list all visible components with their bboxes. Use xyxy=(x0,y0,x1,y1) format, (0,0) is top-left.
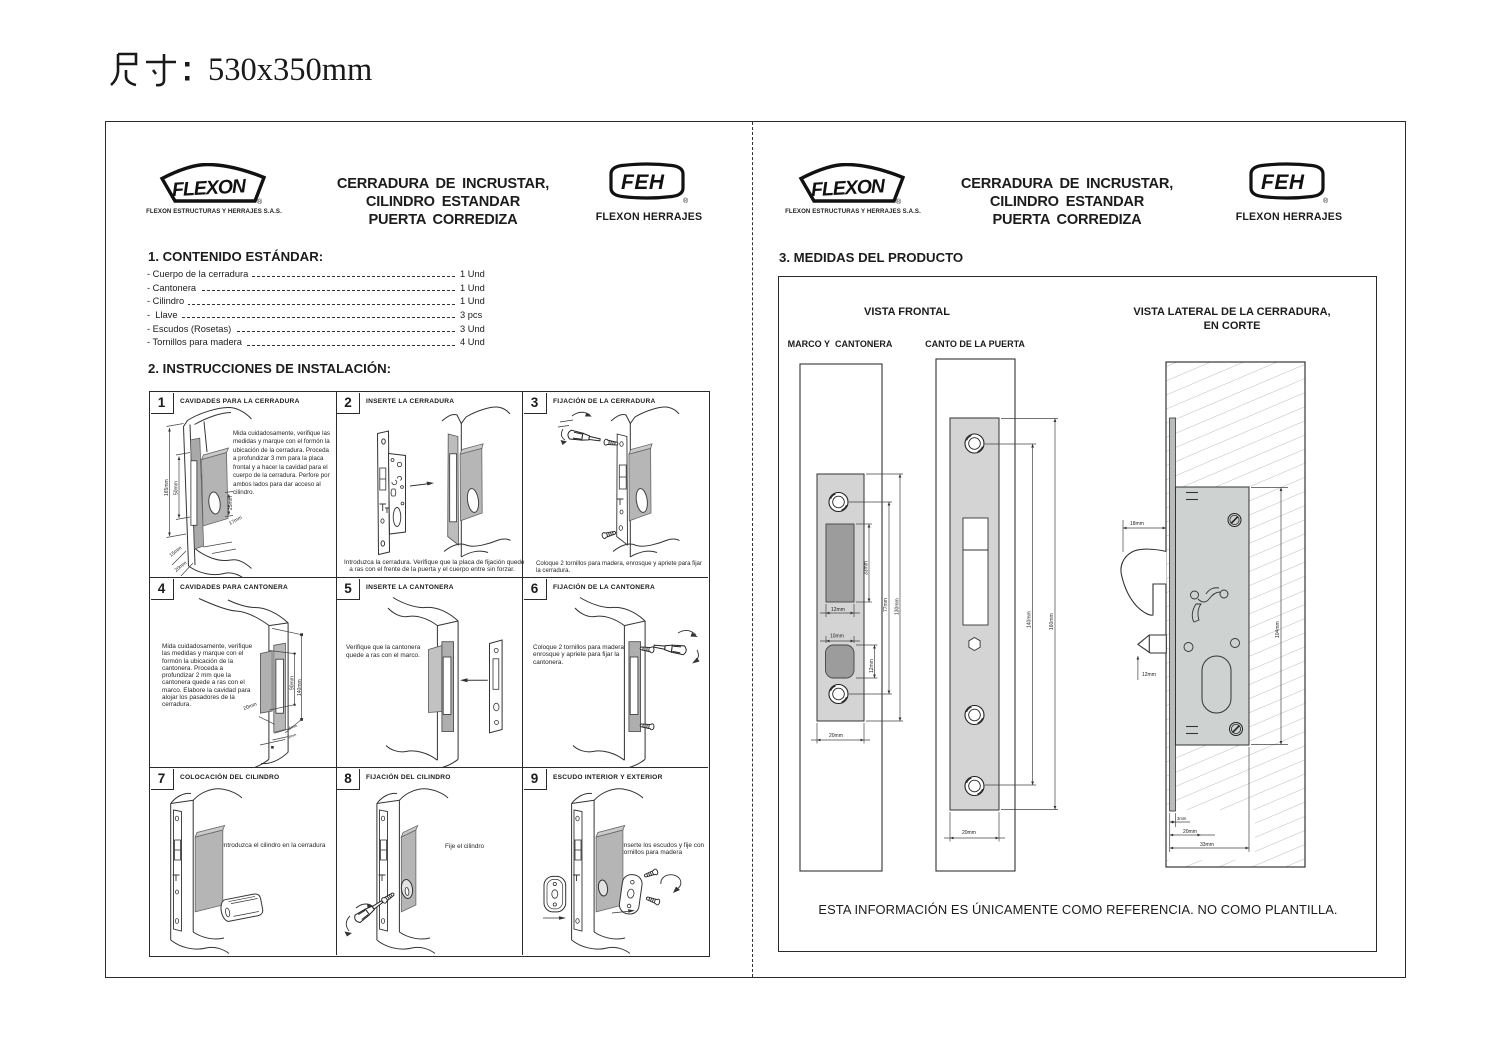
svg-text:FLEXON: FLEXON xyxy=(810,175,886,201)
svg-text:33mm: 33mm xyxy=(1200,842,1214,848)
svg-text:77mm: 77mm xyxy=(883,598,889,612)
svg-text:FLEXON: FLEXON xyxy=(171,175,247,201)
svg-text:18mm: 18mm xyxy=(1130,521,1144,527)
svg-text:25mm: 25mm xyxy=(228,496,234,510)
svg-text:20mm: 20mm xyxy=(174,560,189,573)
svg-text:104mm: 104mm xyxy=(1275,621,1281,638)
svg-text:17mm: 17mm xyxy=(228,515,243,527)
svg-text:FEH: FEH xyxy=(621,171,665,194)
svg-text:50mm: 50mm xyxy=(174,481,180,495)
svg-text:140mm: 140mm xyxy=(297,679,303,696)
svg-text:20mm: 20mm xyxy=(829,733,843,739)
svg-text:®: ® xyxy=(257,198,263,205)
svg-text:3mm: 3mm xyxy=(287,733,296,740)
svg-text:165mm: 165mm xyxy=(164,479,170,496)
svg-text:3mm: 3mm xyxy=(1177,816,1187,821)
svg-text:®: ® xyxy=(1323,197,1329,204)
svg-text:12mm: 12mm xyxy=(869,659,875,673)
svg-text:15mm: 15mm xyxy=(169,545,184,558)
svg-text:160mm: 160mm xyxy=(1049,613,1055,630)
svg-text:33mm: 33mm xyxy=(864,561,870,575)
svg-text:12mm: 12mm xyxy=(1142,672,1156,678)
svg-text:90mm: 90mm xyxy=(290,676,296,690)
svg-text:FEH: FEH xyxy=(1261,171,1305,194)
svg-text:140mm: 140mm xyxy=(1027,611,1033,628)
svg-text:12mm: 12mm xyxy=(831,607,845,613)
svg-text:®: ® xyxy=(683,197,689,204)
svg-text:20mm: 20mm xyxy=(243,701,258,711)
svg-text:5mm: 5mm xyxy=(288,724,297,731)
svg-text:130mm: 130mm xyxy=(895,598,901,615)
svg-text:®: ® xyxy=(896,198,902,205)
svg-text:10mm: 10mm xyxy=(830,634,844,640)
svg-text:20mm: 20mm xyxy=(962,830,976,836)
svg-text:20mm: 20mm xyxy=(1183,829,1197,835)
